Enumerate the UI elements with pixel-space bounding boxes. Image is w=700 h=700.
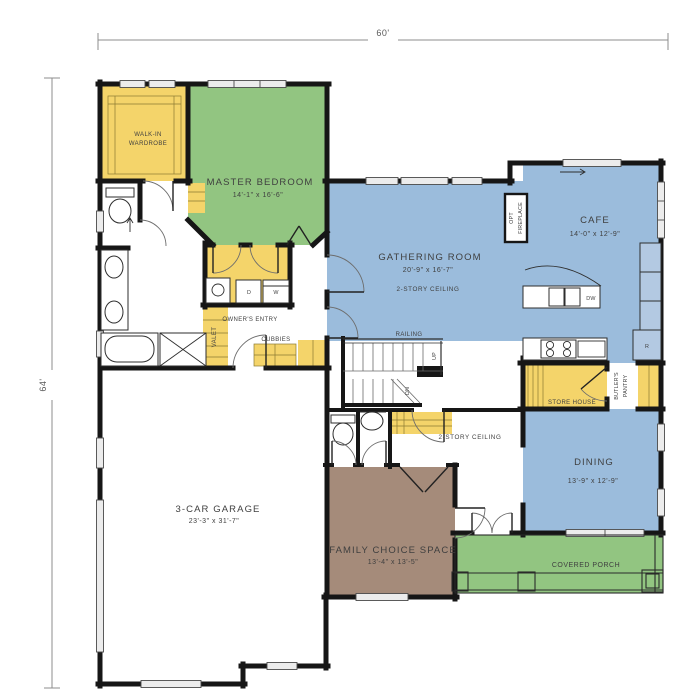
butlers-pantry-label-line1: BUTLER'S (614, 372, 620, 400)
wardrobe-label-line1: WALK-IN (134, 132, 162, 138)
gathering-room-size: 20'-9" x 16'-7" (403, 267, 454, 274)
floor-plan-drawing: 60' 64' (0, 0, 700, 700)
foyer-ceiling-note: 2-STORY CEILING (439, 434, 502, 441)
cubbies-label: CUBBIES (261, 337, 290, 343)
family-choice-size: 13'-4" x 13'-5" (368, 559, 419, 566)
top-dimension-label: 60' (376, 28, 389, 38)
garage-size: 23'-3" x 31'-7" (189, 518, 240, 525)
master-bedroom-size: 14'-1" x 16'-6" (233, 192, 284, 199)
washer-label: W (273, 290, 279, 296)
gathering-room-label: GATHERING ROOM (378, 252, 481, 263)
dryer-label: D (247, 290, 251, 296)
owners-entry-label: OWNER'S ENTRY (222, 317, 277, 323)
stairs (343, 339, 443, 403)
opt-fireplace-label-line2: FIREPLACE (518, 202, 524, 234)
dishwasher-label: DW (586, 296, 596, 302)
dining-label: DINING (574, 457, 614, 468)
store-house-label: STORE HOUSE (548, 400, 596, 406)
cafe-label: CAFE (580, 215, 610, 226)
covered-porch-label: COVERED PORCH (552, 562, 620, 569)
fridge-label: R (645, 344, 649, 350)
valet-label: VALET (212, 327, 218, 348)
floor-plan-page: 60' 64' (0, 0, 700, 700)
gathering-room-note: 2-STORY CEILING (397, 286, 460, 293)
garage-label: 3-CAR GARAGE (176, 504, 261, 515)
family-choice-floor (327, 467, 455, 597)
butlers-pantry-cabinet (638, 363, 661, 409)
dining-size: 13'-9" x 12'-9" (568, 478, 619, 485)
tall-counter (640, 243, 661, 330)
left-dimension-label: 64' (38, 378, 48, 391)
master-bedroom-floor (188, 86, 327, 245)
dining-floor (523, 409, 661, 533)
stairs-up-label: UP (432, 352, 438, 360)
coat-closet (392, 412, 452, 434)
interior-walls (325, 338, 523, 467)
cafe-size: 14'-0" x 12'-9" (570, 231, 621, 238)
linen-cabinet (188, 183, 205, 213)
entry-cabinet (298, 340, 327, 368)
butlers-pantry-label-line2: PANTRY (623, 375, 629, 398)
wardrobe-label-line2: WARDROBE (129, 141, 167, 147)
family-choice-label: FAMILY CHOICE SPACE (329, 545, 457, 556)
opt-fireplace-label-line1: OPT (509, 212, 515, 224)
railing-label: RAILING (396, 332, 423, 338)
stair-landing-wall (417, 366, 443, 377)
stairs-down-label: DN (405, 387, 411, 395)
master-bedroom-label: MASTER BEDROOM (207, 177, 314, 188)
